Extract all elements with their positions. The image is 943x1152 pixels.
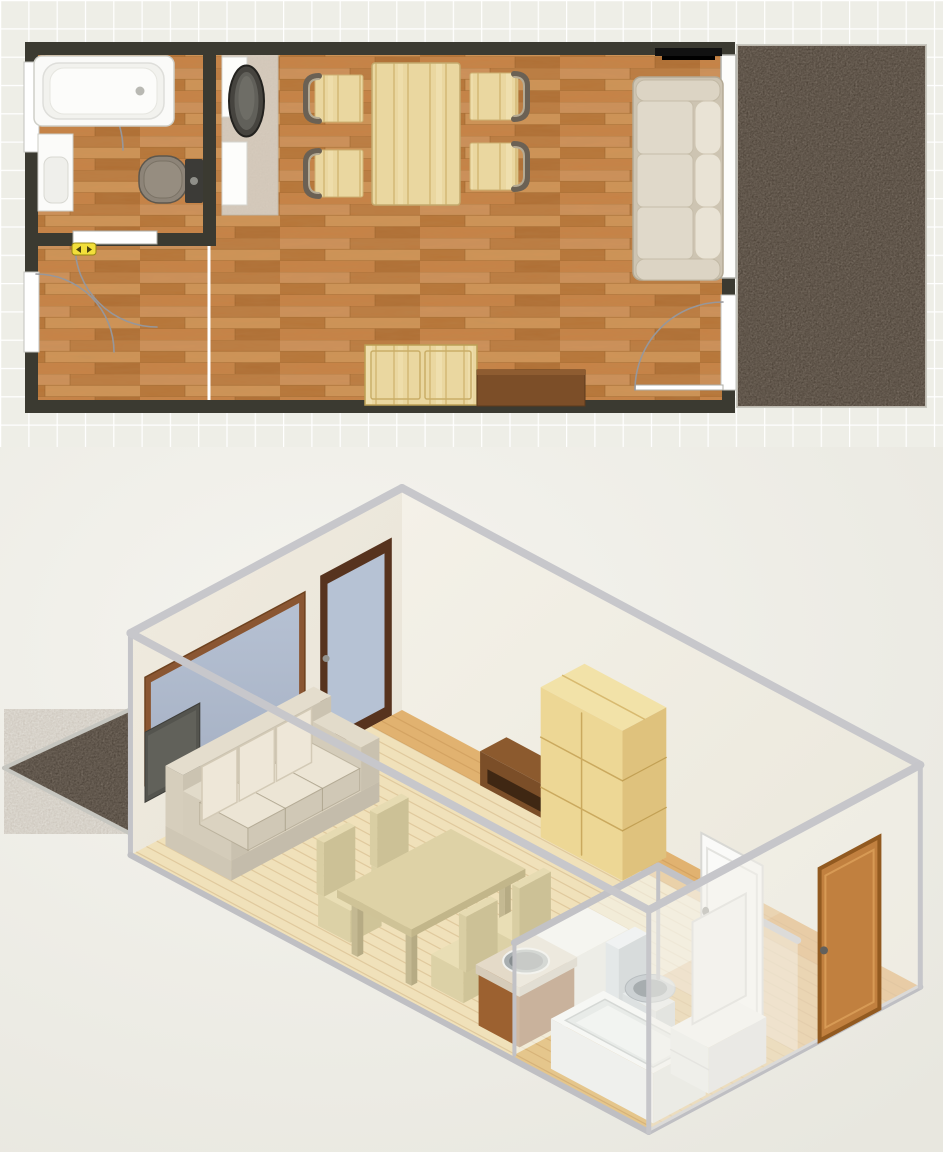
opening-hall-door bbox=[24, 272, 39, 352]
chair-seat-lt bbox=[315, 75, 363, 122]
dark-carpet bbox=[737, 45, 926, 407]
toilet-lid bbox=[144, 161, 182, 198]
tv-stand bbox=[477, 370, 585, 406]
kitchen-sink-hilite bbox=[239, 76, 255, 120]
bathroom-sink-basin bbox=[44, 157, 68, 203]
opening-balcony-door bbox=[721, 295, 736, 390]
iso-view-3d bbox=[0, 447, 943, 1152]
wardrobe-right-face bbox=[623, 707, 667, 880]
threshold bbox=[208, 243, 211, 403]
sofa-back-left-face bbox=[166, 766, 184, 835]
tv-wall-screen bbox=[662, 56, 715, 60]
balcony-door-glass bbox=[328, 553, 385, 737]
sofa-seat-1 bbox=[637, 101, 693, 154]
sofa-seat-2 bbox=[637, 154, 693, 207]
wall-top bbox=[25, 42, 735, 55]
bathtub-drain bbox=[136, 87, 145, 96]
chair-seat-rt bbox=[470, 73, 518, 120]
tv-stand-top bbox=[477, 370, 585, 375]
sofa-back-1 bbox=[695, 101, 721, 154]
toilet-button bbox=[190, 177, 198, 185]
chair-near-1-back-left-face bbox=[512, 885, 519, 945]
entry-door-knob bbox=[820, 946, 828, 954]
entry-door-oak bbox=[820, 837, 880, 1041]
sofa-arm-top bbox=[636, 80, 720, 101]
bath-inner-door-leaf bbox=[73, 231, 157, 244]
balcony-door-knob bbox=[323, 655, 330, 662]
chair-near-2-back-left-face bbox=[459, 913, 466, 973]
tv-wall bbox=[655, 48, 722, 56]
sofa-back-2 bbox=[695, 154, 721, 207]
wall-bathroom-vertical bbox=[203, 42, 216, 246]
chair-far-1-back-left-face bbox=[370, 810, 377, 868]
sofa-seat-3 bbox=[637, 207, 693, 259]
sofa-arm-bottom bbox=[636, 259, 720, 280]
balcony-door-leaf bbox=[635, 385, 723, 390]
sofa-back-3 bbox=[695, 207, 721, 259]
floor-plan-2d bbox=[0, 0, 943, 447]
dining-table bbox=[372, 63, 460, 205]
kitchen-cabinet-b bbox=[222, 142, 247, 205]
chair-far-2-back-left-face bbox=[317, 839, 324, 897]
entry-marker bbox=[72, 243, 96, 255]
chair-seat-rb bbox=[470, 143, 518, 190]
sideboard bbox=[365, 345, 477, 405]
chair-seat-lb bbox=[315, 150, 363, 197]
floor-plan-screenshot bbox=[0, 0, 943, 1152]
